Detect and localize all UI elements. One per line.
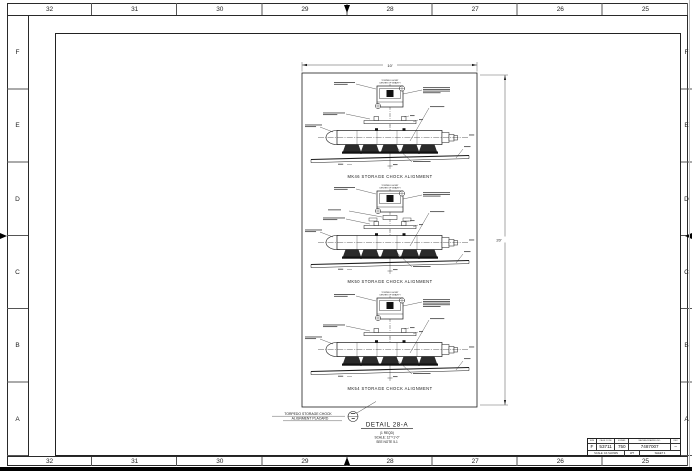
storage-chock-detail: TORPEDO HOISTCENTER OF GRAVITYMK50 STORA…	[305, 185, 474, 284]
dimension-height-label: 20'	[496, 237, 501, 242]
cg-label: CENTER OF GRAVITY	[379, 294, 401, 297]
detail-drawing-svg: 10' 20' TORPEDO STORAGE CHOCK ALIGNMENT …	[0, 0, 692, 473]
detail-scale: SCALE: 12"=1'-0"	[374, 435, 399, 439]
header-cage: CAGE CODE	[597, 439, 616, 443]
detail-caption: MK50 STORAGE CHOCK ALIGNMENT	[347, 279, 432, 284]
dimension-width-label: 10'	[387, 63, 392, 68]
value-drawing-no: 7487007	[629, 444, 671, 451]
dimension-width: 10'	[302, 62, 477, 72]
footer-scale: SCALE: AS SHOWN	[588, 451, 625, 457]
header-eswbs: ESWBS	[615, 439, 629, 443]
dimension-height: 20'	[480, 75, 508, 405]
value-cage-code: 53711	[597, 444, 616, 451]
callout-line1: TORPEDO STORAGE CHOCK	[284, 412, 332, 416]
detail-caption: MK46 STORAGE CHOCK ALIGNMENT	[347, 174, 432, 179]
find-number-balloon	[348, 412, 358, 422]
engineering-drawing-sheet: { "border": { "columns": ["32","31","30"…	[0, 0, 692, 473]
storage-chock-detail: TORPEDO HOISTCENTER OF GRAVITYMK46 STORA…	[305, 80, 474, 179]
title-block-footer-row: SCALE: AS SHOWN WT SHEET 4	[588, 451, 680, 457]
callout-line2: ALIGNMENT PLACARD	[292, 417, 329, 421]
title-block: SIZE CAGE CODE ESWBS NAVSEA DRAWING NO. …	[587, 438, 681, 457]
storage-chock-detail: TORPEDO HOISTCENTER OF GRAVITYMK54 STORA…	[305, 292, 474, 391]
detail-title-group: DETAIL 28-A (1 REQD) SCALE: 12"=1'-0" SE…	[361, 422, 413, 445]
footer-wt: WT	[625, 451, 640, 457]
title-block-value-row: F 53711 750 7487007 –	[588, 444, 680, 452]
value-size: F	[588, 444, 597, 451]
header-rev: REV	[671, 439, 680, 443]
detail-title: DETAIL 28-A	[366, 422, 409, 429]
footer-sheet: SHEET 4	[640, 451, 680, 457]
detail-note: SEE NOTE 5-1	[376, 440, 398, 444]
cg-label: CENTER OF GRAVITY	[379, 187, 401, 190]
header-drawing: NAVSEA DRAWING NO.	[629, 439, 671, 443]
detail-caption: MK54 STORAGE CHOCK ALIGNMENT	[347, 386, 432, 391]
placard-callout: TORPEDO STORAGE CHOCK ALIGNMENT PLACARD	[272, 402, 376, 422]
value-eswbs: 750	[615, 444, 629, 451]
header-size: SIZE	[588, 439, 597, 443]
value-rev: –	[671, 444, 680, 451]
detail-qty: (1 REQD)	[380, 431, 394, 435]
cg-label: CENTER OF GRAVITY	[379, 82, 401, 85]
